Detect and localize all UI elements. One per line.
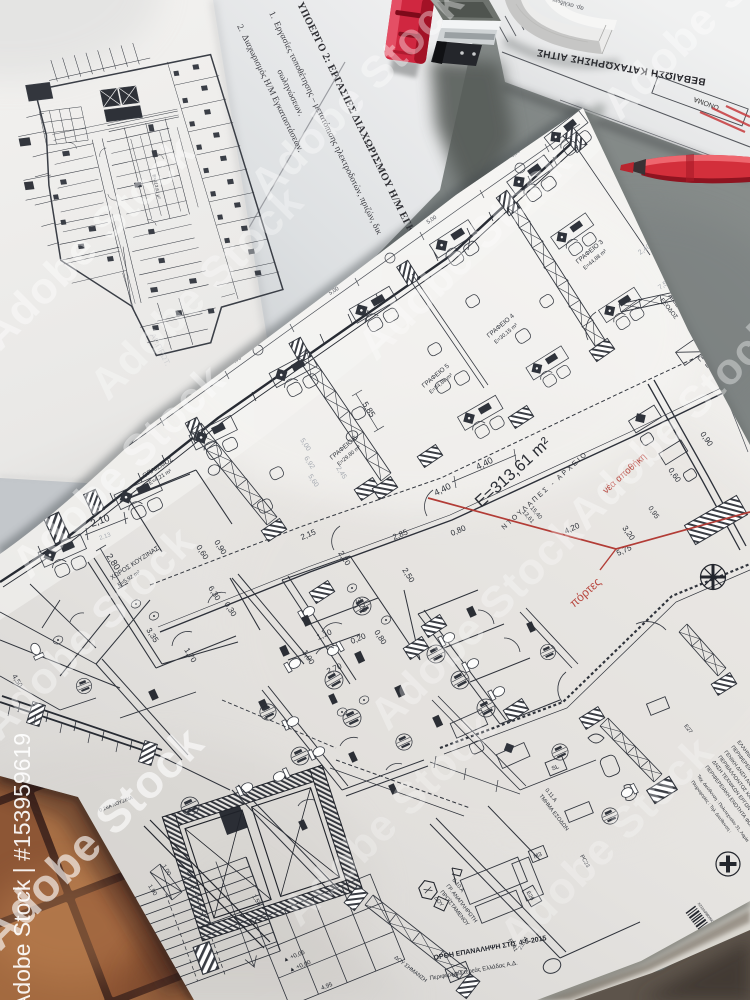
svg-text:Adobe Stock | #153959619: Adobe Stock | #153959619 [9, 733, 35, 1000]
